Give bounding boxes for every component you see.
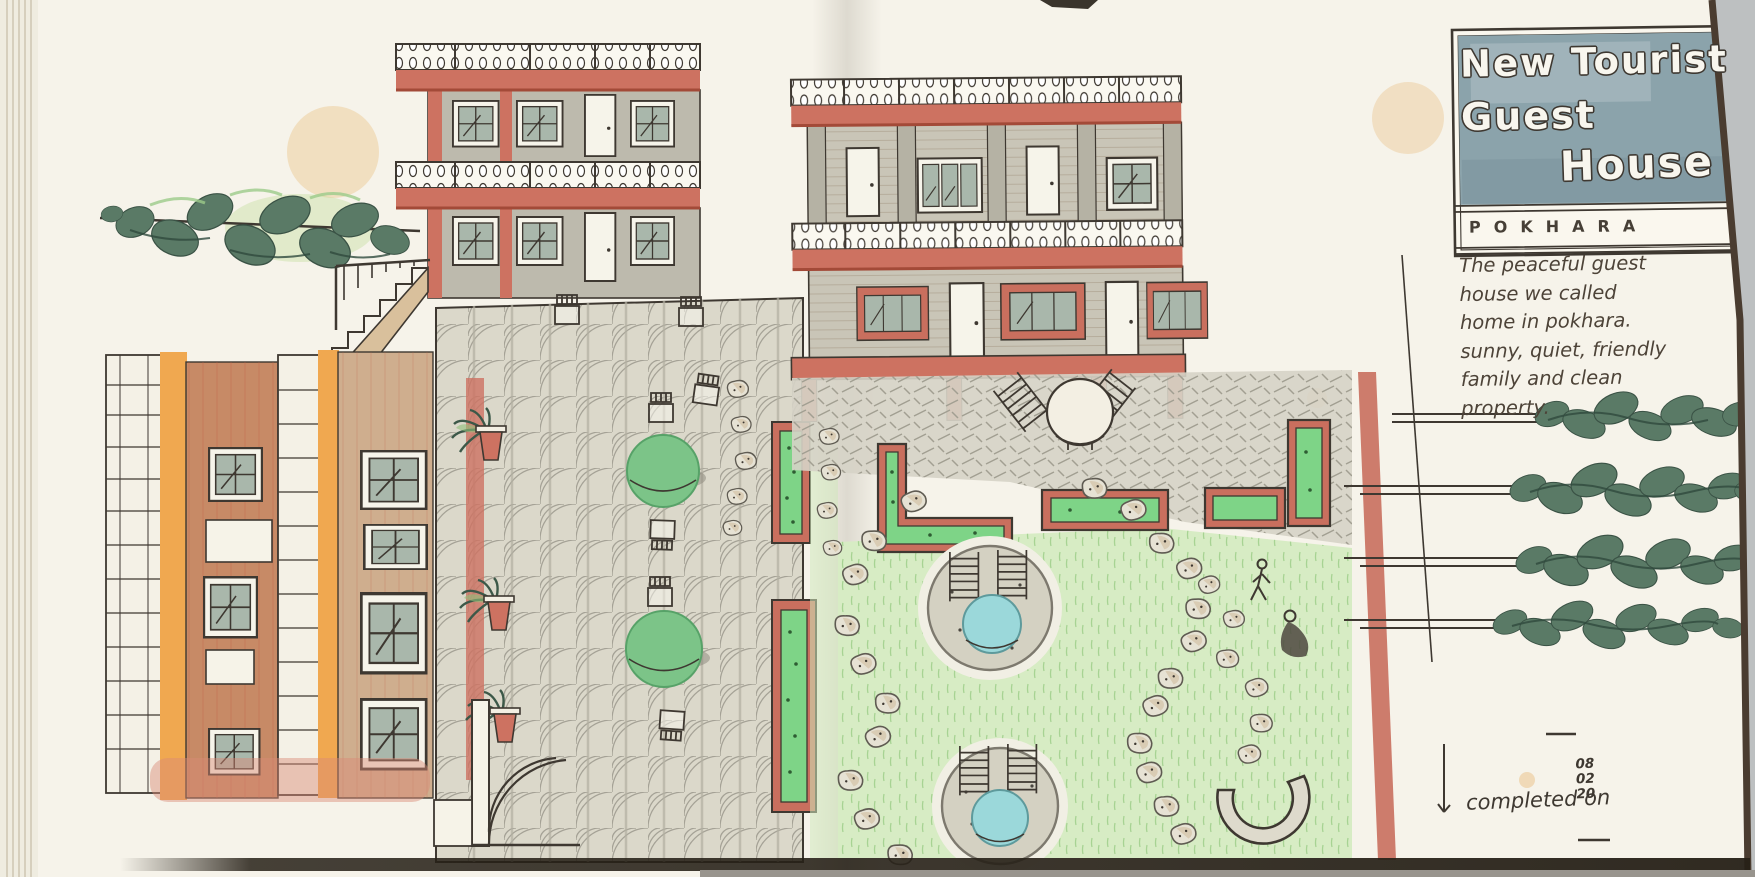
side-building-left <box>106 350 433 802</box>
balcony-band-2 <box>396 162 700 208</box>
sign-title-line2: Guest <box>1461 93 1597 139</box>
sign-subtitle: POKHARA <box>1469 216 1648 236</box>
sign-title-line3: House <box>1559 137 1714 190</box>
book-bottom-edge <box>120 858 1750 871</box>
note-line: sunny, quiet, friendly <box>1460 335 1666 366</box>
balcony-band-1 <box>396 44 700 90</box>
sketchbook-spread: New Tourist Guest House POKHARA The peac… <box>0 0 1755 877</box>
orange-pillar <box>160 352 187 800</box>
balcony-band-top <box>791 76 1181 125</box>
orange-pillar <box>318 350 339 798</box>
guesthouse-elevation-right <box>789 76 1208 422</box>
round-table-blue <box>972 790 1028 846</box>
red-wash <box>150 758 430 802</box>
red-framed-window <box>857 286 929 340</box>
date-year: 20 <box>1576 787 1595 803</box>
note-line: family and clean <box>1461 363 1667 394</box>
triple-window <box>918 158 982 213</box>
note-line: The peaceful guest <box>1459 249 1665 280</box>
round-table-blue <box>963 595 1021 653</box>
window-icon <box>453 101 499 147</box>
book-bottom-shadow <box>700 870 1755 877</box>
handwritten-note: The peaceful guest house we called home … <box>1459 249 1667 423</box>
note-line: home in pokhara. <box>1460 306 1666 337</box>
stone-patio-2 <box>932 738 1068 874</box>
guesthouse-elevation-left <box>396 44 700 298</box>
completion-date: 08 02 20 <box>1575 757 1595 803</box>
door-icon <box>585 95 615 156</box>
note-line: property. <box>1461 392 1667 423</box>
long-planter-2 <box>772 600 816 812</box>
balcony-band-mid <box>792 220 1182 269</box>
note-line: house we called <box>1459 278 1665 309</box>
courtyard-plan <box>434 295 803 862</box>
sign-title-line1: New Tourist <box>1460 37 1729 86</box>
stone-patio-1 <box>918 536 1062 680</box>
